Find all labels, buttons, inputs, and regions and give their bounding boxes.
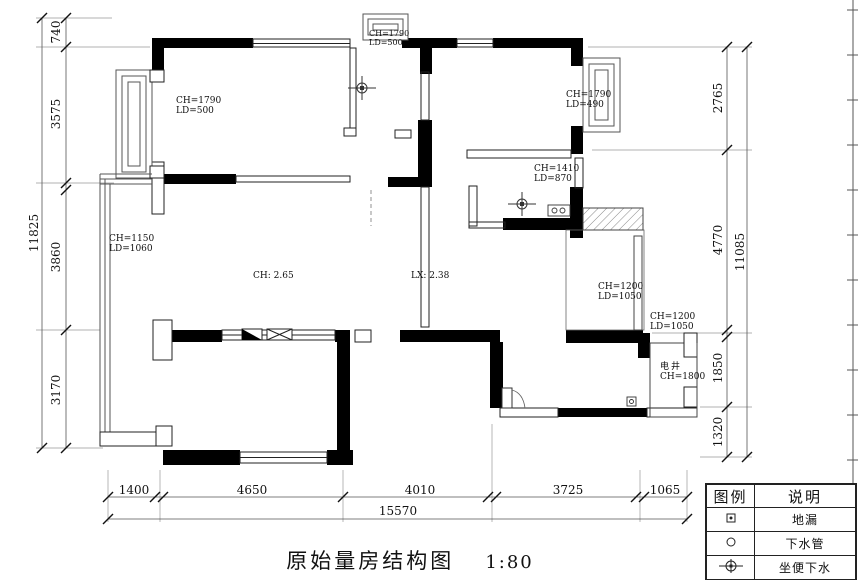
legend-header-description: 说明: [788, 486, 822, 507]
window-annotation-bath2: CH=1410LD=870: [534, 164, 579, 184]
drawing-title-row: 原始量房结构图 1:80: [240, 545, 580, 575]
dim-right-1: 2765: [711, 83, 725, 114]
drawing-scale: 1:80: [485, 552, 533, 573]
beam-height-label: LX: 2.38: [411, 271, 449, 281]
window-annotation-shaft-1: CH=1200LD=1050: [598, 282, 643, 302]
window-x-icon: [267, 329, 292, 340]
dim-right-total: 11085: [733, 233, 747, 271]
window-annotation-top-right: CH=1790LD=490: [566, 90, 611, 110]
drain-pipe-icon: [719, 534, 743, 553]
dim-right-4: 1320: [711, 417, 725, 448]
dim-bottom-4: 3725: [553, 483, 584, 497]
dimension-ticks: [37, 13, 752, 524]
drawing-title: 原始量房结构图: [286, 549, 454, 573]
ceiling-height-label: CH: 2.65: [253, 271, 294, 281]
toilet-drain-icon: [348, 76, 376, 100]
dim-bottom-3: 4010: [405, 483, 436, 497]
legend-header-symbol: 图例: [713, 486, 747, 507]
floor-drain-icon: [719, 510, 743, 529]
legend-table: 图例 说明 地漏 下水管 坐便下水 强电箱: [705, 483, 857, 580]
dim-left-4: 3170: [49, 375, 63, 406]
window-annotation-shaft-2: CH=1200LD=1050: [650, 312, 695, 332]
drain-pipe-icon: [548, 205, 570, 216]
dim-bottom-2: 4650: [237, 483, 268, 497]
window-annotation-top-left: CH=1790LD=500: [176, 96, 221, 116]
legend-row: 下水管: [707, 531, 855, 555]
partition-walls: [152, 39, 697, 463]
window-annotation-left-bay: CH=1150LD=1060: [109, 234, 154, 254]
floorplan-sheet: 740 3575 3860 3170 11825 2765 4770 1850 …: [0, 0, 860, 580]
dim-left-1: 740: [49, 21, 63, 44]
dim-left-3: 3860: [49, 242, 63, 273]
legend-row: 坐便下水: [707, 555, 855, 579]
legend-label: 坐便下水: [779, 559, 831, 576]
dim-left-total: 11825: [27, 214, 41, 252]
legend-label: 下水管: [785, 535, 824, 552]
floor-drain-icon: [627, 397, 636, 406]
legend-label: 地漏: [792, 511, 818, 528]
door-swing-icon: [502, 388, 525, 408]
window-annotation-top-bump: CH=1790LD=500: [369, 29, 409, 47]
toilet-drain-icon: [718, 558, 744, 578]
dim-bottom-1: 1400: [119, 483, 150, 497]
legend-row: 地漏: [707, 507, 855, 531]
dim-left-2: 3575: [49, 99, 63, 130]
electric-shaft-label: 电井 CH=1800: [660, 362, 705, 382]
dim-right-3: 1850: [711, 353, 725, 384]
toilet-drain-icon: [508, 192, 536, 216]
legend-header-row: 图例 说明: [707, 485, 855, 507]
dim-right-2: 4770: [711, 225, 725, 256]
dim-bottom-5: 1065: [650, 483, 681, 497]
dim-bottom-total: 15570: [379, 504, 417, 518]
door-symbol-icon: [242, 329, 262, 340]
